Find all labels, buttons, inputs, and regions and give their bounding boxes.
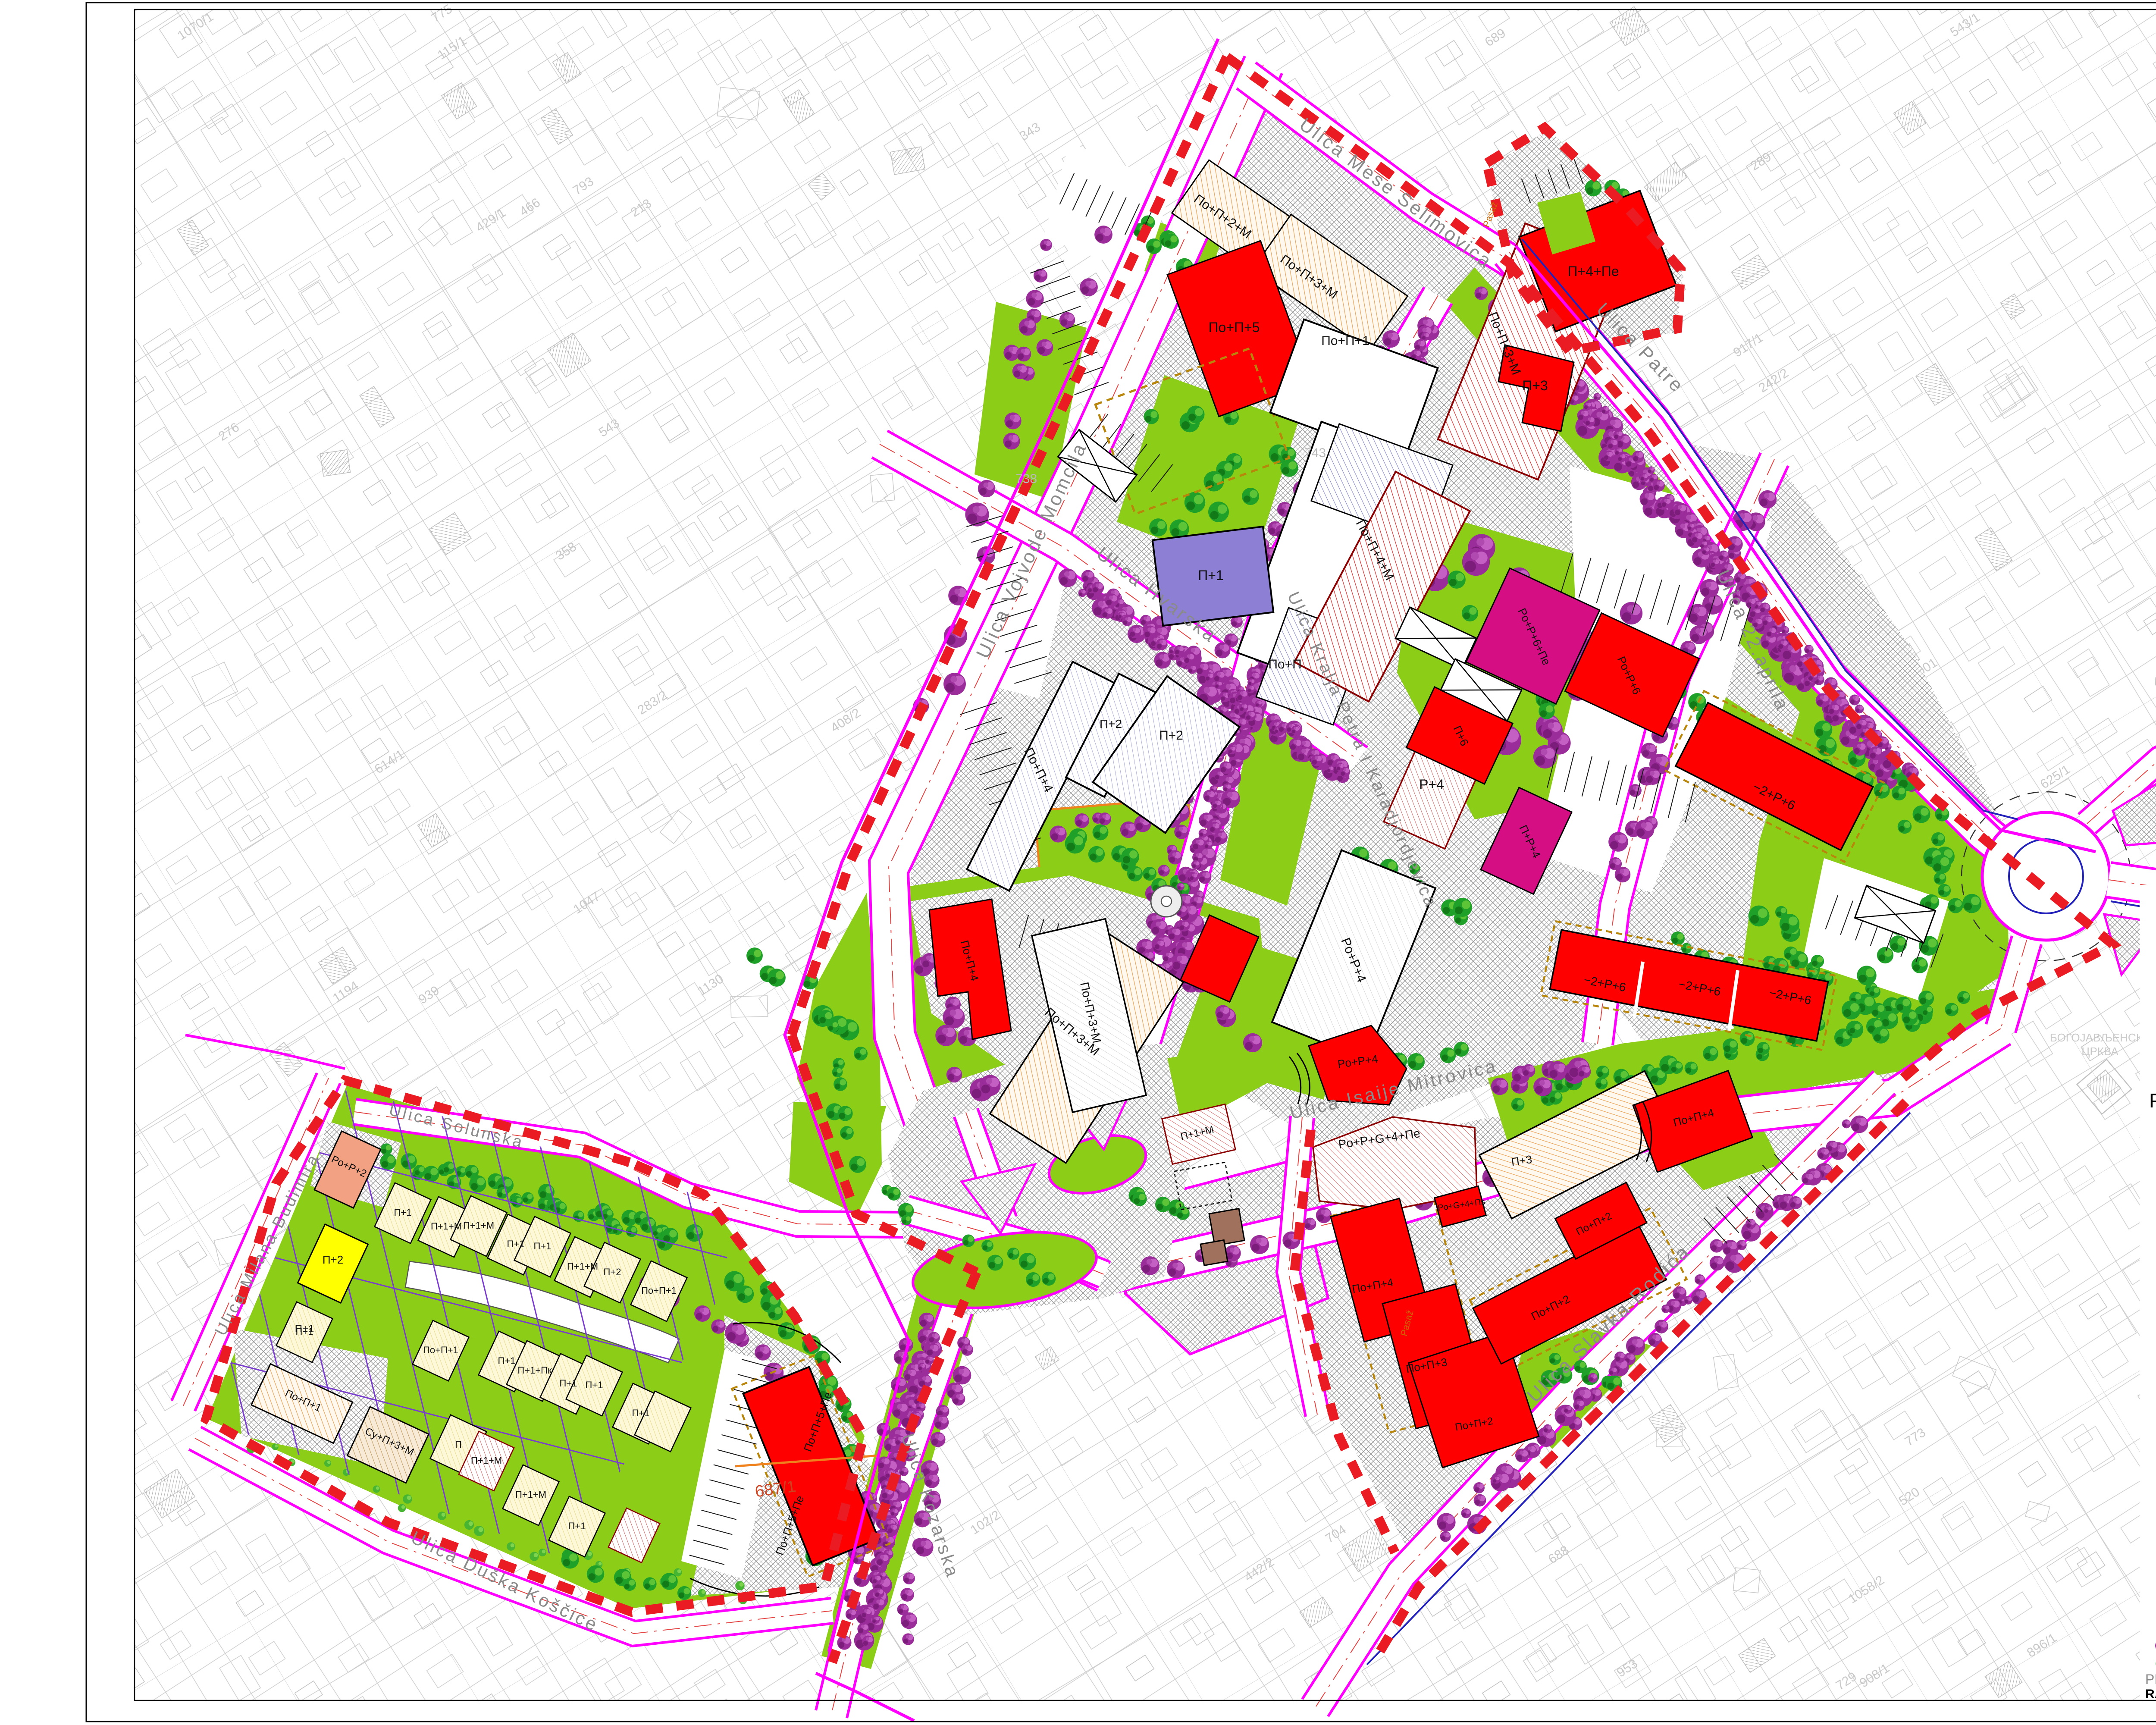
svg-text:П+1: П+1 (534, 1241, 552, 1251)
svg-text:П+1: П+1 (1198, 568, 1223, 583)
svg-text:PRILOG br.05: PRILOG br.05 (2145, 1672, 2156, 1687)
svg-text:ЦРКВА: ЦРКВА (2081, 1045, 2118, 1058)
svg-text:П+1: П+1 (507, 1239, 525, 1249)
svg-text:П+1: П+1 (394, 1207, 412, 1218)
svg-text:По+П+1: По+П+1 (423, 1345, 458, 1355)
svg-text:П+1: П+1 (632, 1408, 650, 1418)
svg-text:По+П+1: По+П+1 (1321, 334, 1369, 348)
svg-text:П+4+Пе: П+4+Пе (1568, 263, 1619, 279)
svg-text:П+1+М: П+1+М (471, 1455, 502, 1466)
svg-text:По+П: По+П (1268, 657, 1301, 671)
svg-text:П+1: П+1 (568, 1521, 586, 1531)
svg-text:P+4: P+4 (1419, 777, 1444, 792)
svg-text:П+1: П+1 (560, 1378, 577, 1389)
svg-text:П+1: П+1 (498, 1355, 516, 1366)
svg-text:743: 743 (1304, 446, 1326, 460)
svg-text:П+1+М: П+1+М (515, 1489, 546, 1500)
svg-text:738: 738 (1015, 472, 1037, 486)
svg-text:PLAN PROSTORNE ORGANIZACIJE: PLAN PROSTORNE ORGANIZACIJE (2149, 1089, 2156, 1112)
svg-text:По+П+5: По+П+5 (1209, 320, 1260, 335)
svg-text:П+1: П+1 (296, 1326, 313, 1337)
svg-text:RAZMJERA 1:500: RAZMJERA 1:500 (2145, 1687, 2156, 1701)
svg-text:П+2: П+2 (1100, 717, 1122, 731)
svg-text:П+1+Пк: П+1+Пк (517, 1365, 552, 1376)
svg-text:П+1: П+1 (586, 1380, 603, 1390)
svg-text:П+2: П+2 (604, 1267, 621, 1277)
svg-text:П+1+М: П+1+М (463, 1220, 494, 1231)
svg-text:П+1+М: П+1+М (567, 1261, 598, 1272)
svg-text:БОГОЈАВЉЕНСКА: БОГОЈАВЉЕНСКА (2050, 1031, 2150, 1044)
svg-text:П+1+М: П+1+М (431, 1221, 462, 1232)
svg-text:По+П+1: По+П+1 (641, 1285, 677, 1296)
svg-text:П+3: П+3 (1522, 378, 1548, 393)
svg-text:П: П (455, 1439, 462, 1450)
svg-text:П+2: П+2 (1159, 728, 1183, 743)
svg-text:П+2: П+2 (323, 1253, 343, 1266)
